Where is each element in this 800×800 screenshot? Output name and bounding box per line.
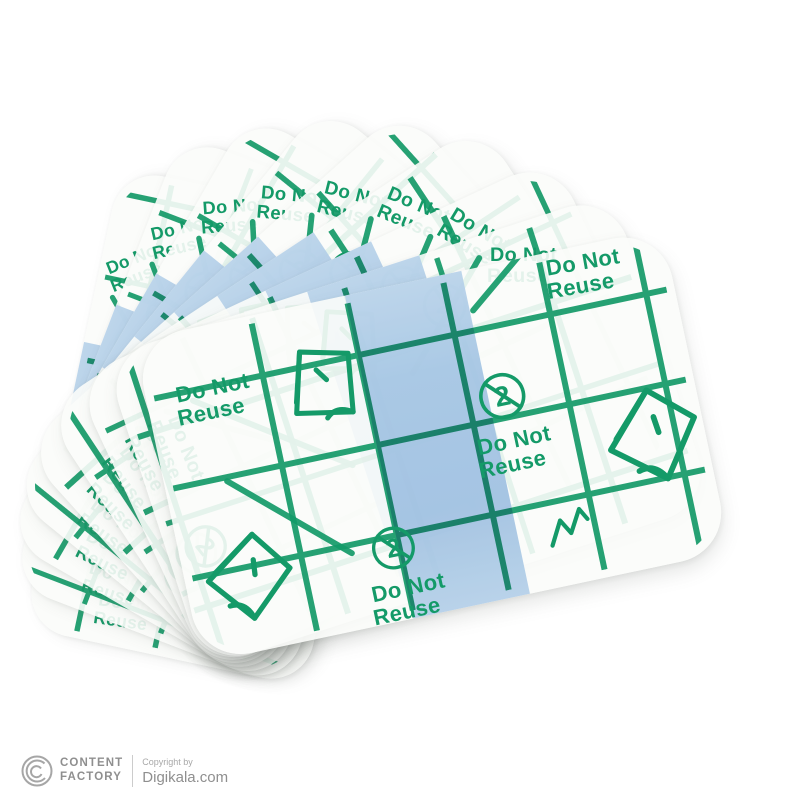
product-photo-scene: Do NotReuse Do NotReuse Do NotReuse Do N…	[0, 0, 800, 800]
peel-corner-icon	[597, 379, 708, 490]
no-reuse-2-icon	[470, 364, 534, 428]
watermark-brand-line1: CONTENT	[60, 757, 123, 771]
watermark-source: Digikala.com	[142, 769, 228, 786]
watermark-right: Copyright by Digikala.com	[142, 757, 228, 786]
watermark-copyright-label: Copyright by	[142, 757, 228, 767]
watermark: CONTENT FACTORY Copyright by Digikala.co…	[20, 754, 228, 788]
content-factory-logo-icon	[20, 754, 54, 788]
peel-corner-icon	[195, 521, 303, 629]
no-reuse-2-icon	[364, 518, 423, 577]
watermark-divider	[132, 755, 133, 787]
watermark-brand: CONTENT FACTORY	[60, 757, 123, 784]
watermark-brand-line2: FACTORY	[60, 771, 123, 785]
